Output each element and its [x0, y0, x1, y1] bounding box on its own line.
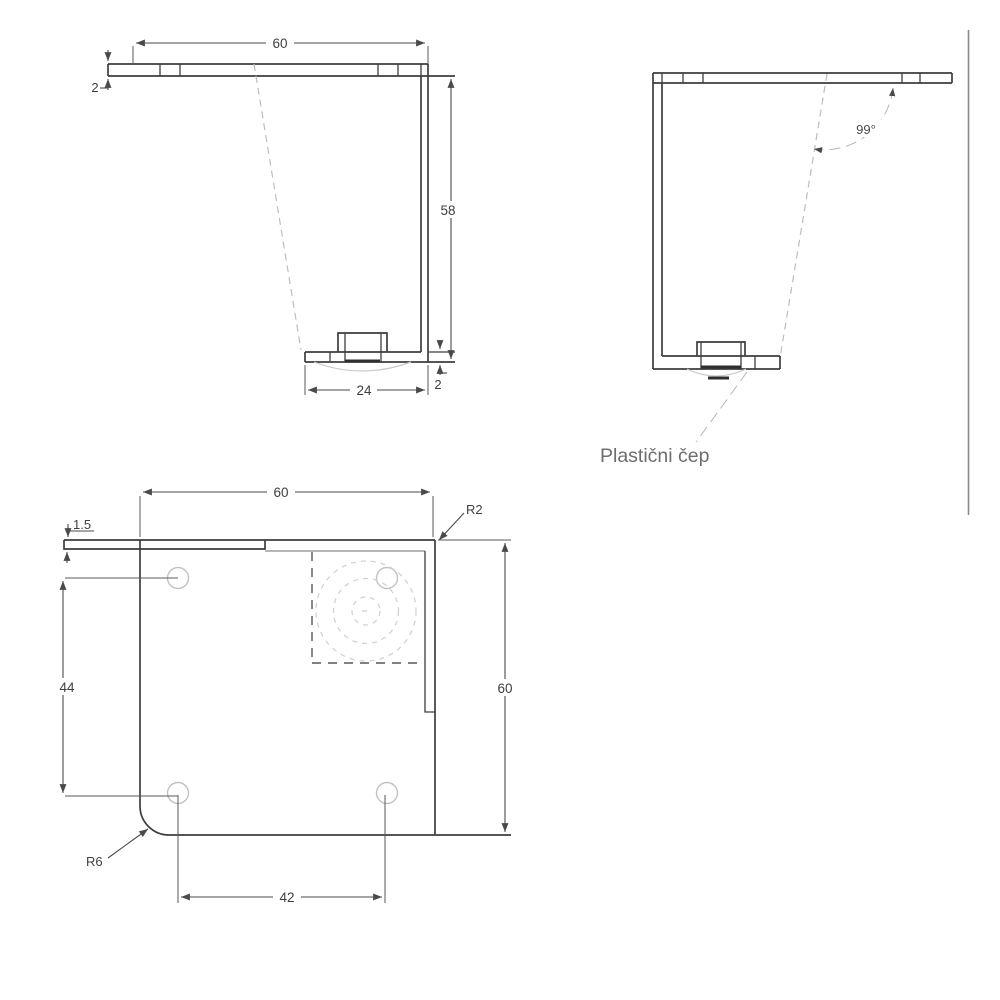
front-dim-height-label: 58: [440, 203, 455, 218]
angled-view: 99° Plastični čep: [600, 73, 952, 467]
front-dim-top-width-label: 60: [272, 36, 287, 51]
angled-top-plate: [653, 73, 952, 83]
plastic-cap-callout-label: Plastični čep: [600, 445, 710, 467]
front-dim-plate-thickness-label: 2: [91, 80, 98, 95]
plan-corner-radius-r2: R2: [439, 502, 483, 540]
plan-dim-top-width-label: 60: [273, 485, 288, 500]
angled-leg: [653, 73, 662, 369]
front-top-plate: [108, 64, 455, 76]
plan-screw-holes: [168, 568, 398, 804]
front-dim-foot-thickness: 2: [434, 340, 447, 392]
drawing-svg: 60 2 58 24 2: [0, 0, 1000, 1000]
plan-hidden-foot-projection: [312, 552, 424, 663]
plan-view: 60 R2 1.5 44 60: [54, 484, 518, 905]
plan-plate-outline: [64, 540, 511, 835]
angled-leg-centerline: [780, 74, 827, 358]
plan-dim-hole-spacing-horizontal-label: 42: [279, 890, 294, 905]
plan-dim-hole-spacing-vertical-label: 44: [59, 680, 75, 695]
front-dim-foot-thickness-label: 2: [434, 377, 441, 392]
front-dim-foot-width: 24: [305, 365, 428, 398]
plan-dim-hole-spacing-vertical: 44: [54, 578, 178, 796]
plan-dim-top-width: 60: [140, 484, 433, 537]
front-leg: [421, 64, 428, 362]
plan-dim-side-height: 60: [438, 540, 518, 832]
front-leg-centerline: [254, 64, 301, 350]
plan-dim-side-height-label: 60: [497, 681, 512, 696]
front-dim-foot-width-label: 24: [356, 383, 372, 398]
hole-top-right: [377, 568, 398, 589]
plan-corner-radius-r6-label: R6: [86, 854, 103, 869]
front-dim-plate-thickness: 2: [91, 50, 108, 95]
plastic-cap-callout: Plastični čep: [600, 372, 747, 467]
hole-bottom-right: [377, 783, 398, 804]
plan-dim-hole-spacing-horizontal: 42: [178, 795, 385, 905]
front-dim-height: 58: [437, 79, 461, 359]
plan-corner-radius-r2-label: R2: [466, 502, 483, 517]
angled-dim-angle: 99°: [814, 88, 893, 150]
angled-dim-angle-label: 99°: [856, 122, 876, 137]
front-view: 60 2 58 24 2: [91, 35, 461, 398]
angled-plastic-cap: [687, 342, 746, 378]
plan-corner-radius-r6: R6: [86, 829, 148, 869]
plan-dim-edge-offset-label: 1.5: [73, 517, 91, 532]
technical-drawing-page: 60 2 58 24 2: [0, 0, 1000, 1000]
front-dim-top-width: 60: [133, 35, 428, 64]
